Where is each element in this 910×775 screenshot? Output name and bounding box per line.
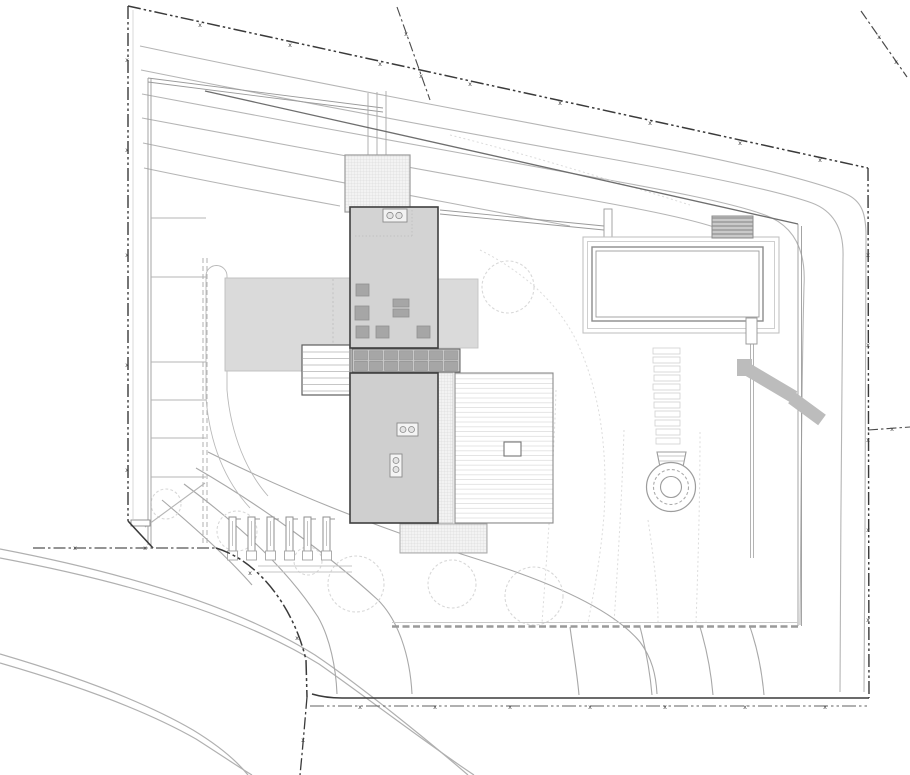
svg-text:x: x (818, 156, 822, 164)
svg-text:x: x (508, 703, 512, 711)
svg-text:x: x (866, 341, 870, 349)
svg-text:x: x (248, 569, 252, 577)
svg-text:x: x (198, 21, 202, 29)
svg-text:x: x (663, 703, 667, 711)
svg-text:x: x (866, 526, 870, 534)
svg-text:x: x (143, 544, 147, 552)
svg-text:x: x (588, 703, 592, 711)
svg-text:x: x (125, 466, 129, 474)
svg-text:x: x (648, 119, 652, 127)
svg-text:x: x (738, 139, 742, 147)
planter-posts (228, 517, 336, 560)
svg-text:x: x (823, 703, 827, 711)
svg-text:x: x (877, 33, 881, 41)
svg-text:x: x (558, 99, 562, 107)
svg-text:x: x (743, 703, 747, 711)
svg-text:x: x (125, 146, 129, 154)
svg-text:x: x (295, 634, 299, 642)
svg-text:x: x (890, 425, 894, 433)
svg-text:x: x (404, 30, 408, 38)
svg-text:x: x (125, 361, 129, 369)
svg-text:x: x (301, 736, 305, 744)
site-plan-svg: xxxxxxxxxxxxxxxxxxxxxxxxxxxxxxxxxxx (0, 0, 910, 775)
svg-text:x: x (866, 616, 870, 624)
svg-text:x: x (866, 251, 870, 259)
street-curves (0, 549, 474, 775)
slope-band (737, 359, 822, 420)
svg-text:x: x (894, 58, 898, 66)
spa (647, 452, 696, 512)
svg-text:x: x (358, 703, 362, 711)
svg-text:x: x (288, 41, 292, 49)
spa-step-path (653, 348, 680, 444)
svg-text:x: x (468, 80, 472, 88)
svg-text:x: x (125, 251, 129, 259)
site-plan-page: xxxxxxxxxxxxxxxxxxxxxxxxxxxxxxxxxxx (0, 0, 910, 775)
main-house-upper (350, 207, 438, 348)
glazed-bridge (352, 349, 460, 372)
main-house-lower (350, 373, 438, 523)
svg-text:x: x (378, 60, 382, 68)
svg-text:x: x (433, 703, 437, 711)
svg-text:x: x (73, 544, 77, 552)
svg-text:x: x (125, 56, 129, 64)
svg-text:x: x (866, 436, 870, 444)
svg-text:x: x (419, 72, 423, 80)
